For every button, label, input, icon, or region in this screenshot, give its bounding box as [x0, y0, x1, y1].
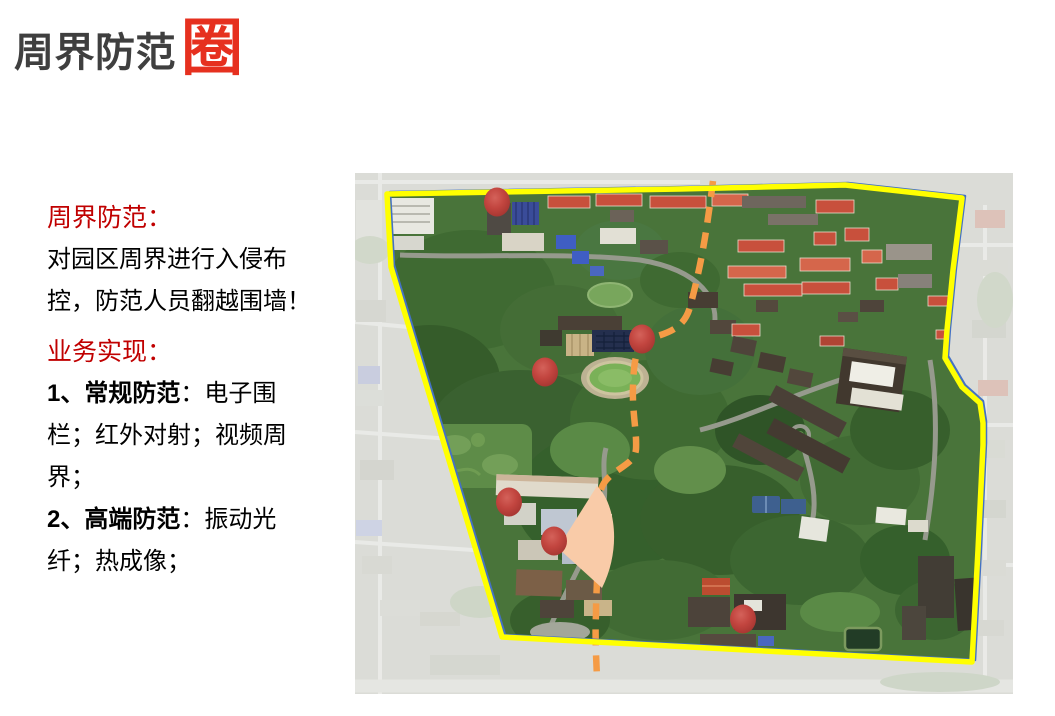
campus-aerial-map	[355, 173, 1013, 694]
title-badge-seal: 圈	[181, 20, 243, 79]
business-item-2-tail: ：振动光	[180, 506, 276, 533]
business-item-2-line-2: 纤；热成像；	[47, 541, 352, 583]
info-panel: 周界防范： 对园区周界进行入侵布 控，防范人员翻越围墙！ 业务实现： 1、常规防…	[47, 197, 352, 583]
business-item-2-line-1: 2、高端防范：振动光	[47, 499, 352, 541]
alarm-marker	[629, 325, 655, 354]
page-title: 周界防范	[14, 20, 176, 78]
title-bar: 周界防范 圈	[14, 20, 243, 79]
perimeter-desc-line-2: 控，防范人员翻越围墙！	[47, 281, 352, 323]
business-item-1-line-1: 1、常规防范：电子围	[47, 373, 352, 415]
alarm-marker	[532, 358, 558, 387]
business-heading: 业务实现：	[47, 331, 352, 373]
business-item-2-term: 2、高端防范	[47, 506, 180, 533]
perimeter-heading: 周界防范：	[47, 197, 352, 239]
business-item-1-tail: ：电子围	[180, 380, 276, 407]
slide: 周界防范 圈 周界防范： 对园区周界进行入侵布 控，防范人员翻越围墙！ 业务实现…	[0, 0, 1055, 716]
alarm-marker	[484, 188, 510, 217]
perimeter-desc-line-1: 对园区周界进行入侵布	[47, 239, 352, 281]
business-item-1-line-2: 栏；红外对射；视频周	[47, 415, 352, 457]
alarm-marker	[541, 527, 567, 556]
alarm-marker	[496, 488, 522, 517]
alarm-marker	[730, 605, 756, 634]
satellite-imagery	[355, 173, 1013, 694]
business-item-1-line-3: 界；	[47, 457, 352, 499]
business-item-1-term: 1、常规防范	[47, 380, 180, 407]
